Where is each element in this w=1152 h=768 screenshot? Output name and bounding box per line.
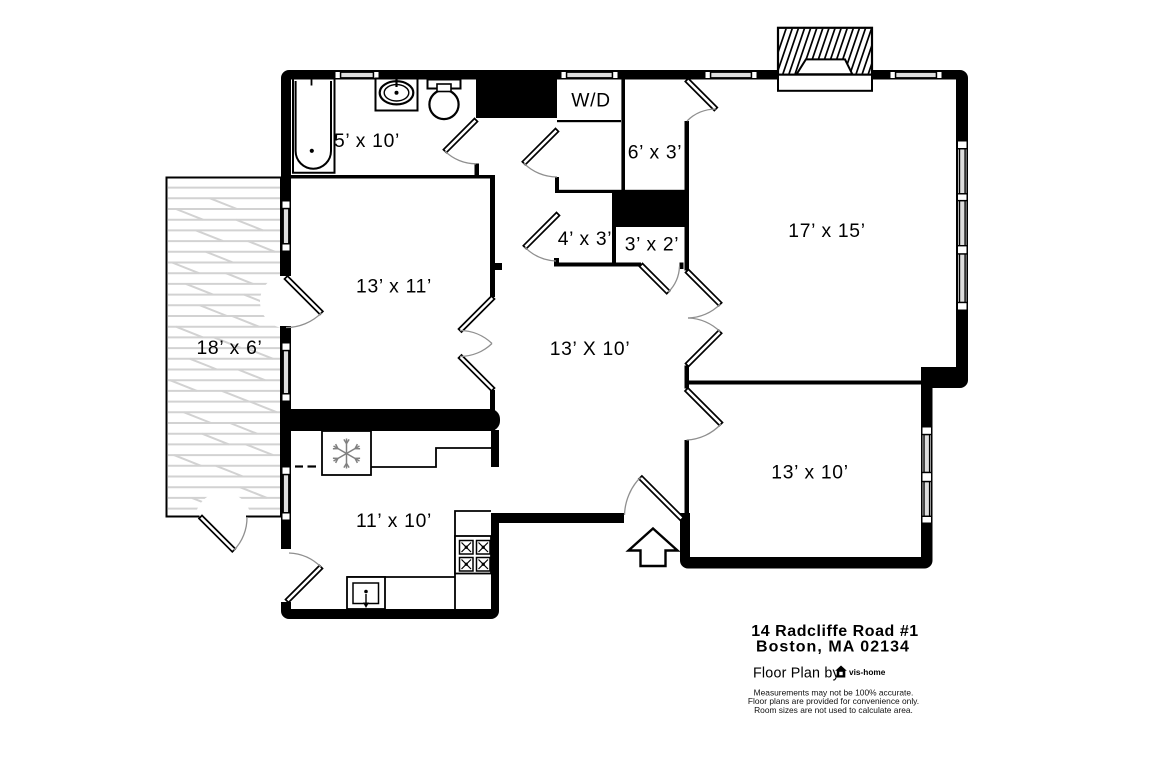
svg-text:17’ x 15’: 17’ x 15’ bbox=[788, 221, 865, 242]
svg-text:13’ x 11’: 13’ x 11’ bbox=[356, 277, 432, 298]
svg-text:11’ x 10’: 11’ x 10’ bbox=[356, 511, 432, 532]
svg-text:18’ x 6’: 18’ x 6’ bbox=[197, 338, 263, 359]
svg-text:6’ x 3’: 6’ x 3’ bbox=[628, 143, 683, 164]
svg-text:4’ x 3’: 4’ x 3’ bbox=[558, 229, 613, 250]
svg-text:13’ x 10’: 13’ x 10’ bbox=[771, 463, 848, 484]
svg-text:5’ x 10’: 5’ x 10’ bbox=[334, 131, 400, 152]
svg-text:W/D: W/D bbox=[571, 91, 611, 112]
svg-text:13’ X 10’: 13’ X 10’ bbox=[550, 339, 631, 360]
svg-text:14 Radcliffe Road #1: 14 Radcliffe Road #1 bbox=[751, 623, 919, 640]
svg-text:3’ x 2’: 3’ x 2’ bbox=[625, 235, 680, 256]
svg-text:vis-home: vis-home bbox=[849, 667, 886, 677]
svg-text:Floor Plan by: Floor Plan by bbox=[753, 666, 840, 682]
svg-text:Boston, MA 02134: Boston, MA 02134 bbox=[756, 639, 910, 656]
svg-text:Room sizes are not used to cal: Room sizes are not used to calculate are… bbox=[754, 705, 913, 715]
